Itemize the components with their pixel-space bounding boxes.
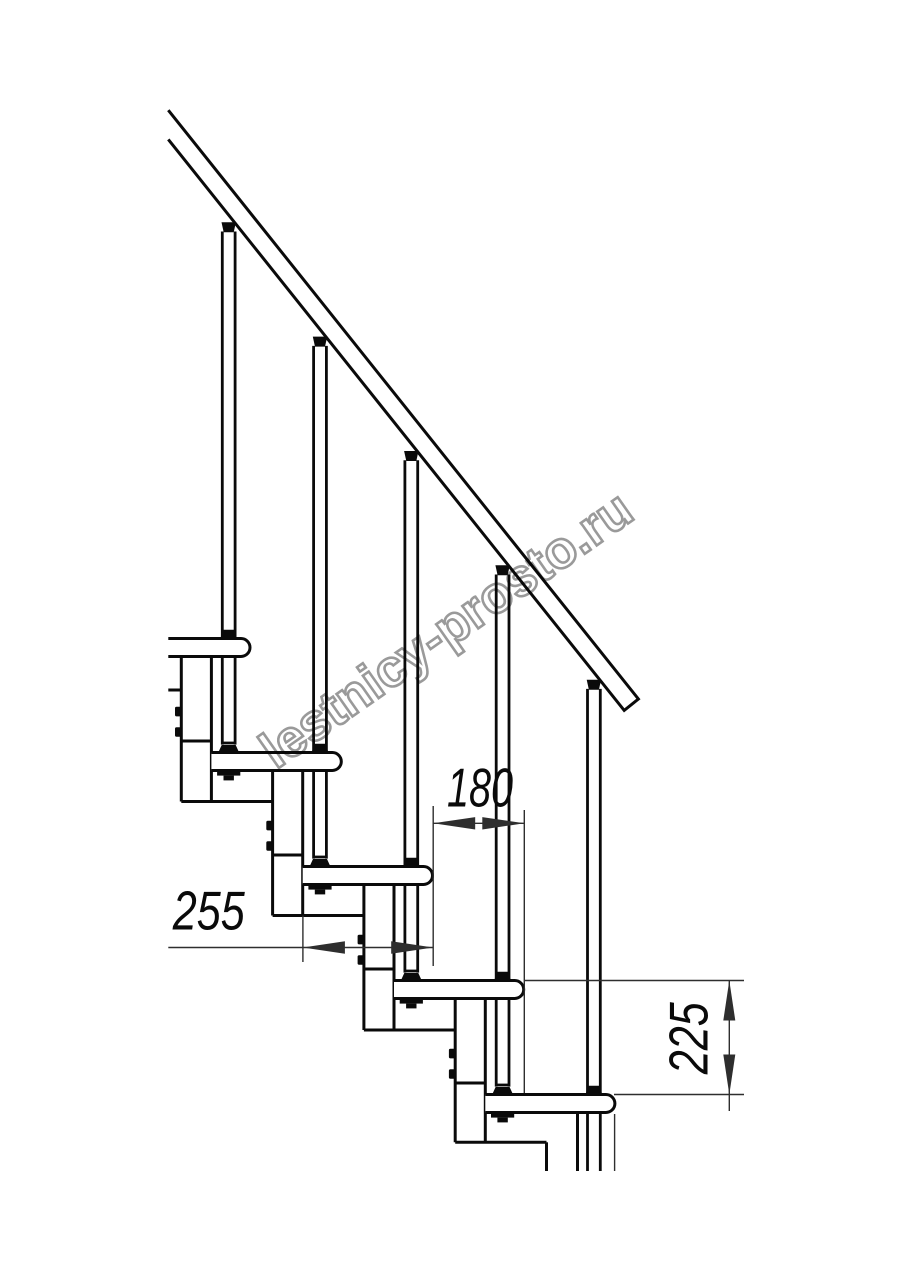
svg-text:225: 225 (658, 1002, 720, 1075)
svg-text:255: 255 (172, 880, 245, 942)
svg-text:180: 180 (447, 757, 513, 819)
